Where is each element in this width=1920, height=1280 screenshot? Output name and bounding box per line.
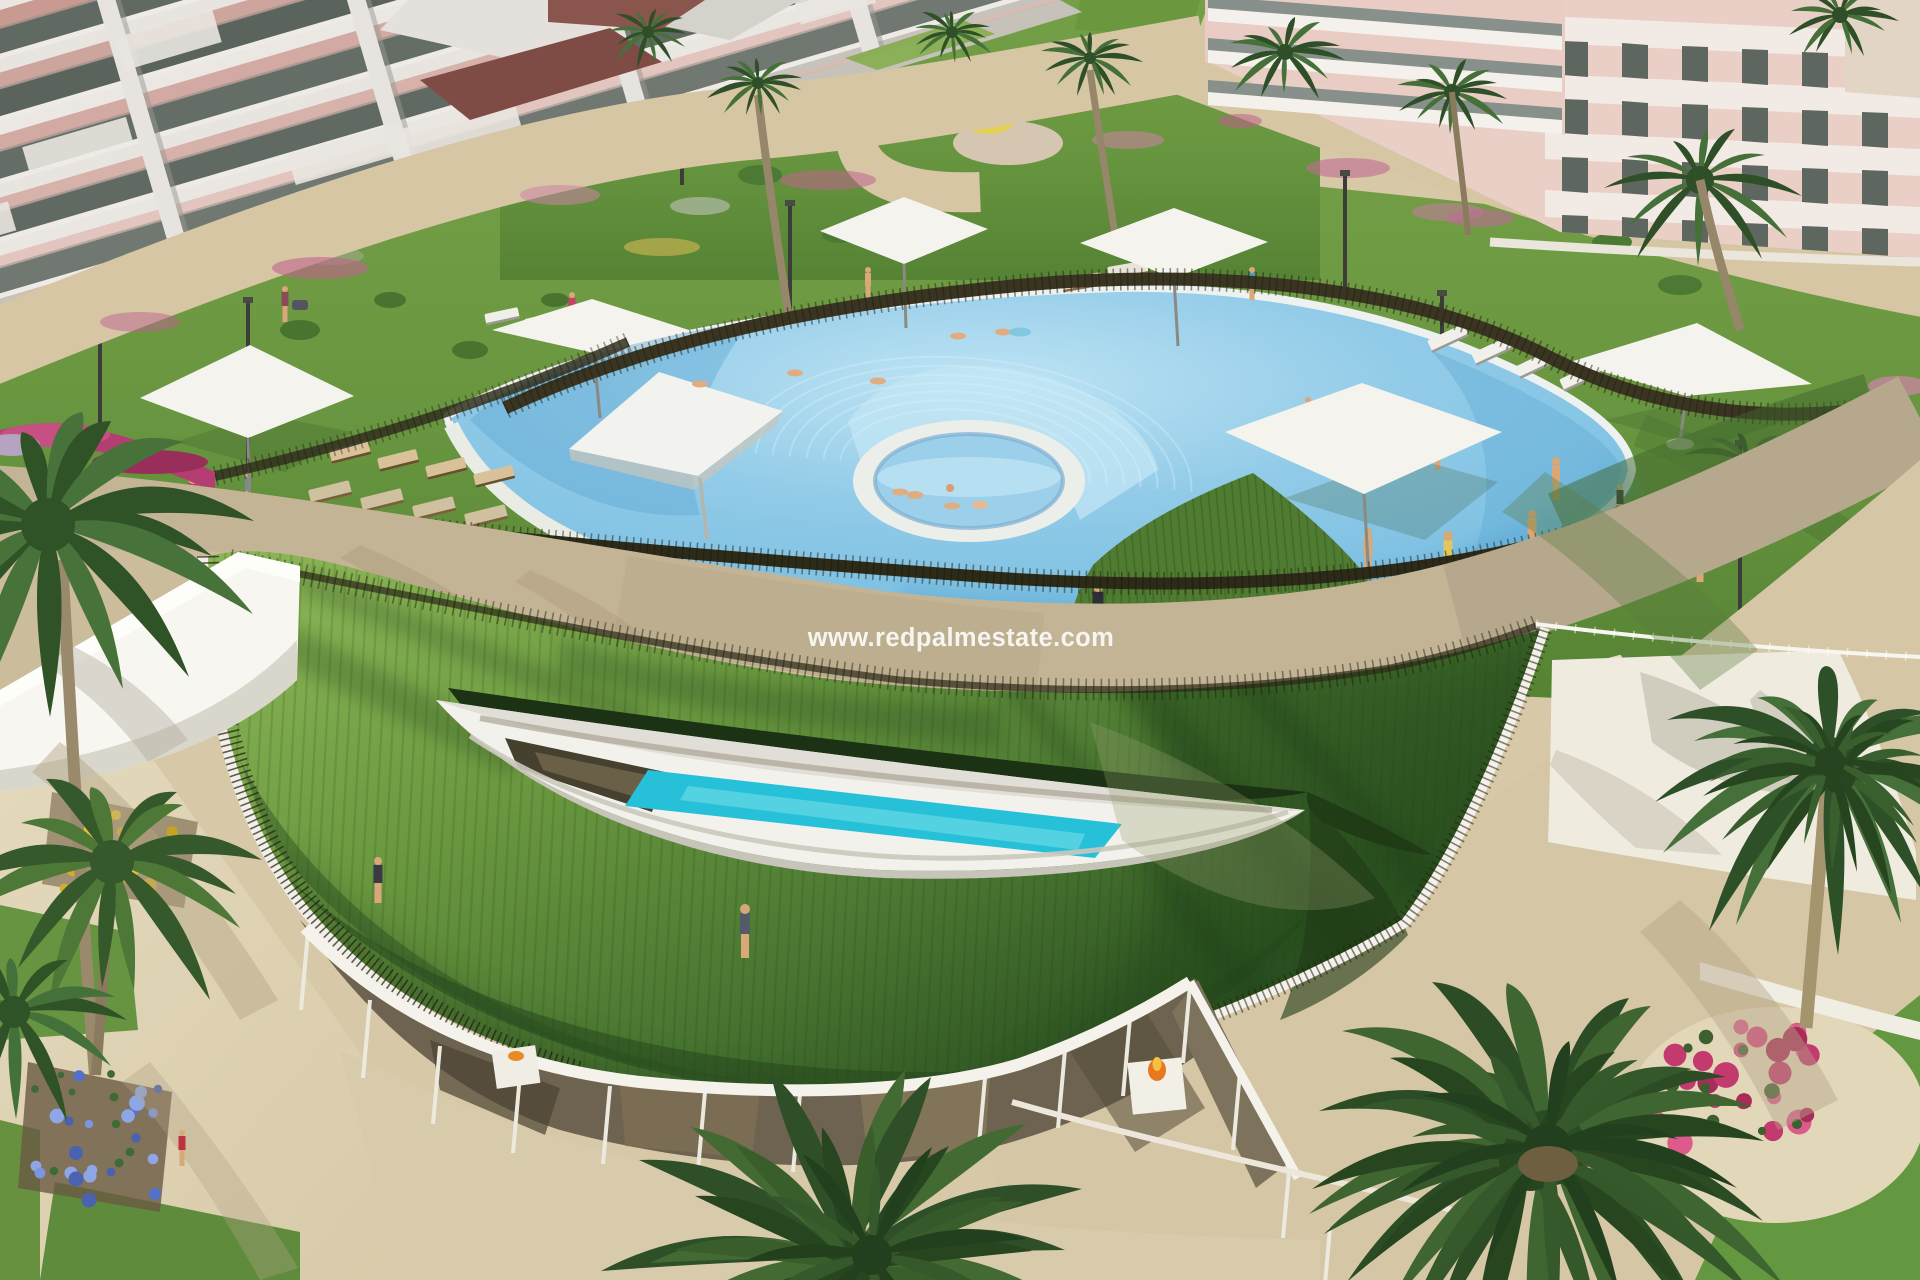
svg-text:www.redpalmestate.com: www.redpalmestate.com (807, 624, 1114, 652)
